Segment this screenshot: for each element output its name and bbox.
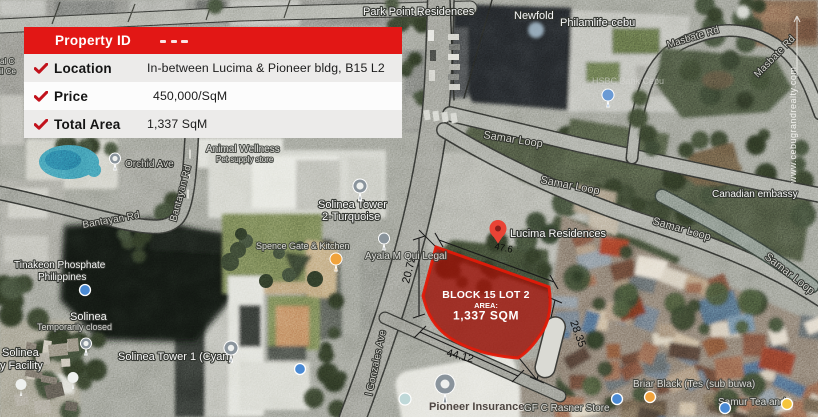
- svg-text:GF C Rasner Store: GF C Rasner Store: [524, 403, 610, 414]
- svg-text:Solinea Tower 1 (Cyan): Solinea Tower 1 (Cyan): [118, 351, 232, 363]
- svg-text:al C: al C: [0, 57, 14, 66]
- svg-text:y Facility: y Facility: [0, 360, 43, 372]
- svg-text:Philippines: Philippines: [38, 272, 86, 283]
- svg-text:Orchid Ave: Orchid Ave: [125, 159, 174, 170]
- svg-text:Animal Wellness: Animal Wellness: [206, 144, 280, 155]
- svg-text:Qui Legal: Qui Legal: [404, 251, 447, 262]
- svg-text:Philamlife-cebu: Philamlife-cebu: [560, 17, 635, 29]
- svg-text:Newfold: Newfold: [514, 10, 554, 22]
- svg-text:2-Turquoise: 2-Turquoise: [322, 211, 380, 223]
- svg-text:Ayala M: Ayala M: [365, 251, 401, 262]
- svg-text:Lucima Residences: Lucima Residences: [510, 228, 606, 240]
- svg-text:Park Point Residences: Park Point Residences: [363, 6, 475, 18]
- svg-text:1,337 SQM: 1,337 SQM: [453, 309, 519, 323]
- svg-text:HSBC Bank Cebu: HSBC Bank Cebu: [592, 76, 664, 86]
- svg-text:www.cebugrandrealty.com: www.cebugrandrealty.com: [788, 67, 798, 184]
- svg-text:Temporarily closed: Temporarily closed: [37, 322, 112, 332]
- svg-text:BLOCK 15 LOT 2: BLOCK 15 LOT 2: [442, 289, 529, 301]
- svg-text:il Ce: il Ce: [0, 67, 17, 76]
- svg-text:Briar Black (Tes (sub buwa): Briar Black (Tes (sub buwa): [633, 379, 755, 390]
- svg-text:Solinea Tower: Solinea Tower: [318, 199, 387, 211]
- svg-text:Pet supply store: Pet supply store: [216, 155, 274, 164]
- svg-text:Spence Gate & Kitchen: Spence Gate & Kitchen: [256, 241, 350, 251]
- svg-text:Tinakeon Phosphate: Tinakeon Phosphate: [14, 260, 106, 271]
- svg-text:Canadian embassy: Canadian embassy: [712, 189, 798, 200]
- svg-text:Solinea: Solinea: [2, 347, 40, 359]
